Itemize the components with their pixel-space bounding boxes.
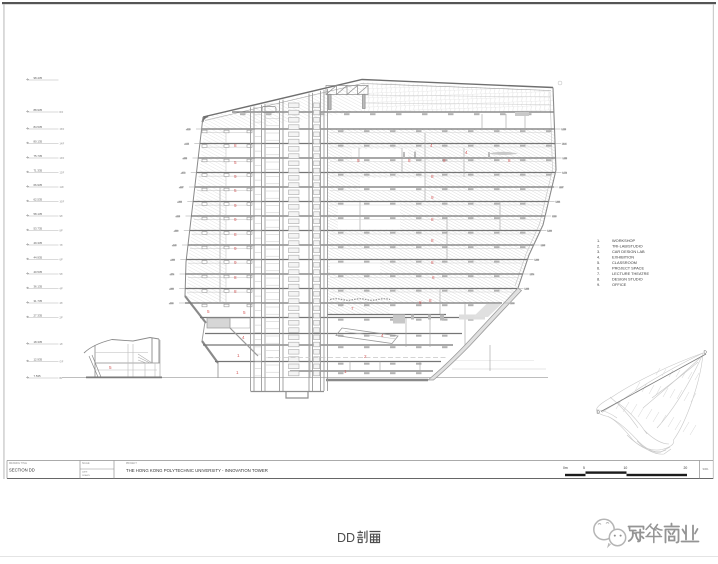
svg-text:5: 5: [357, 158, 360, 163]
svg-text:18.335: 18.335: [34, 340, 43, 344]
svg-text:DESIGN STUDIO: DESIGN STUDIO: [612, 276, 643, 281]
svg-text:4: 4: [465, 150, 468, 155]
svg-text:8: 8: [443, 158, 446, 163]
svg-text:6: 6: [432, 275, 435, 280]
svg-text:G/F: G/F: [60, 362, 64, 364]
svg-text:14/F: 14/F: [60, 144, 65, 146]
svg-text:9: 9: [234, 260, 237, 265]
svg-text:OFFICE: OFFICE: [612, 282, 627, 287]
svg-text:0m: 0m: [563, 466, 568, 470]
svg-text:1: 1: [237, 353, 240, 358]
svg-text:8: 8: [234, 275, 237, 280]
svg-text:31.735: 31.735: [34, 299, 43, 303]
svg-text:12.935: 12.935: [34, 358, 43, 362]
svg-text:SECTION DD: SECTION DD: [9, 468, 35, 473]
svg-text:27.335: 27.335: [34, 314, 43, 318]
svg-text:CLASSROOM: CLASSROOM: [612, 260, 637, 265]
svg-text:DRAWN: DRAWN: [82, 474, 90, 477]
svg-text:DD: DD: [337, 531, 355, 545]
svg-text:8: 8: [508, 158, 511, 163]
svg-text:8: 8: [431, 174, 434, 179]
svg-text:7.535: 7.535: [34, 374, 41, 378]
svg-text:75.735: 75.735: [34, 154, 43, 158]
svg-text:9: 9: [234, 174, 237, 179]
svg-text:PROJECT SPACE: PROJECT SPACE: [612, 265, 644, 270]
svg-text:6.: 6.: [597, 265, 600, 270]
svg-text:12/F: 12/F: [60, 173, 65, 175]
svg-text:8: 8: [408, 158, 411, 163]
svg-text:2: 2: [364, 354, 367, 359]
svg-text:TRI-LAB/STUDIO: TRI-LAB/STUDIO: [612, 244, 643, 249]
svg-text:80.135: 80.135: [34, 140, 43, 144]
svg-text:8: 8: [234, 289, 237, 294]
svg-text:4: 4: [242, 335, 245, 340]
svg-text:53.735: 53.735: [34, 227, 43, 231]
svg-text:8: 8: [234, 232, 237, 237]
svg-text:EXHIBITION: EXHIBITION: [612, 255, 634, 260]
svg-text:1: 1: [236, 370, 239, 375]
svg-text:SCALE: SCALE: [82, 462, 90, 465]
svg-text:S001: S001: [703, 467, 710, 471]
svg-text:98.435: 98.435: [34, 76, 43, 80]
svg-text:62.535: 62.535: [34, 198, 43, 202]
svg-text:3.: 3.: [597, 249, 600, 254]
svg-text:15/F: 15/F: [60, 129, 65, 131]
svg-text:20: 20: [684, 466, 688, 470]
svg-text:4: 4: [381, 333, 384, 338]
svg-text:1.: 1.: [597, 238, 600, 243]
svg-text:DATE: DATE: [82, 471, 88, 474]
svg-text:88.935: 88.935: [34, 108, 43, 112]
svg-text:5.: 5.: [597, 260, 600, 265]
svg-text:58.135: 58.135: [34, 212, 43, 216]
svg-text:8: 8: [419, 300, 422, 305]
svg-text:THE HONG KONG POLYTECHNIC UNIV: THE HONG KONG POLYTECHNIC UNIVERSITY - I…: [126, 468, 268, 473]
svg-text:44.935: 44.935: [34, 256, 43, 260]
svg-text:49.335: 49.335: [34, 241, 43, 245]
svg-text:5: 5: [207, 309, 210, 314]
svg-text:10/F: 10/F: [60, 202, 65, 204]
svg-text:8: 8: [431, 238, 434, 243]
svg-text:7: 7: [351, 306, 354, 311]
svg-text:36.135: 36.135: [34, 285, 43, 289]
svg-text:8: 8: [234, 143, 237, 148]
svg-text:8.: 8.: [597, 276, 600, 281]
svg-text:DRAWING TITLE: DRAWING TITLE: [9, 462, 27, 465]
svg-text:R/F: R/F: [60, 112, 64, 114]
svg-text:CAR DESIGN LAB: CAR DESIGN LAB: [612, 249, 645, 254]
svg-text:LECTURE THEATRE: LECTURE THEATRE: [612, 271, 649, 276]
svg-text:9: 9: [234, 203, 237, 208]
svg-text:4: 4: [430, 143, 433, 148]
svg-text:WORKSHOP: WORKSHOP: [612, 238, 636, 243]
svg-text:8: 8: [431, 217, 434, 222]
svg-text:66.935: 66.935: [34, 183, 43, 187]
svg-text:10: 10: [624, 466, 628, 470]
svg-text:9: 9: [234, 246, 237, 251]
svg-text:5: 5: [583, 466, 585, 470]
svg-text:11/F: 11/F: [60, 187, 65, 189]
svg-text:13/F: 13/F: [60, 158, 65, 160]
svg-text:8: 8: [429, 298, 432, 303]
svg-text:5: 5: [243, 310, 246, 315]
svg-text:1: 1: [344, 369, 347, 374]
svg-text:5: 5: [234, 160, 237, 165]
svg-text:2.: 2.: [597, 244, 600, 249]
svg-text:9.: 9.: [597, 282, 600, 287]
svg-text:9: 9: [234, 217, 237, 222]
svg-text:9: 9: [431, 195, 434, 200]
svg-text:7.: 7.: [597, 271, 600, 276]
svg-text:84.535: 84.535: [34, 125, 43, 129]
svg-text:5: 5: [234, 188, 237, 193]
svg-text:PROJECT: PROJECT: [126, 463, 137, 465]
svg-text:5: 5: [109, 365, 112, 370]
svg-text:8: 8: [431, 260, 434, 265]
svg-text:40.535: 40.535: [34, 270, 43, 274]
svg-text:4.: 4.: [597, 255, 600, 260]
svg-text:71.335: 71.335: [34, 169, 43, 173]
